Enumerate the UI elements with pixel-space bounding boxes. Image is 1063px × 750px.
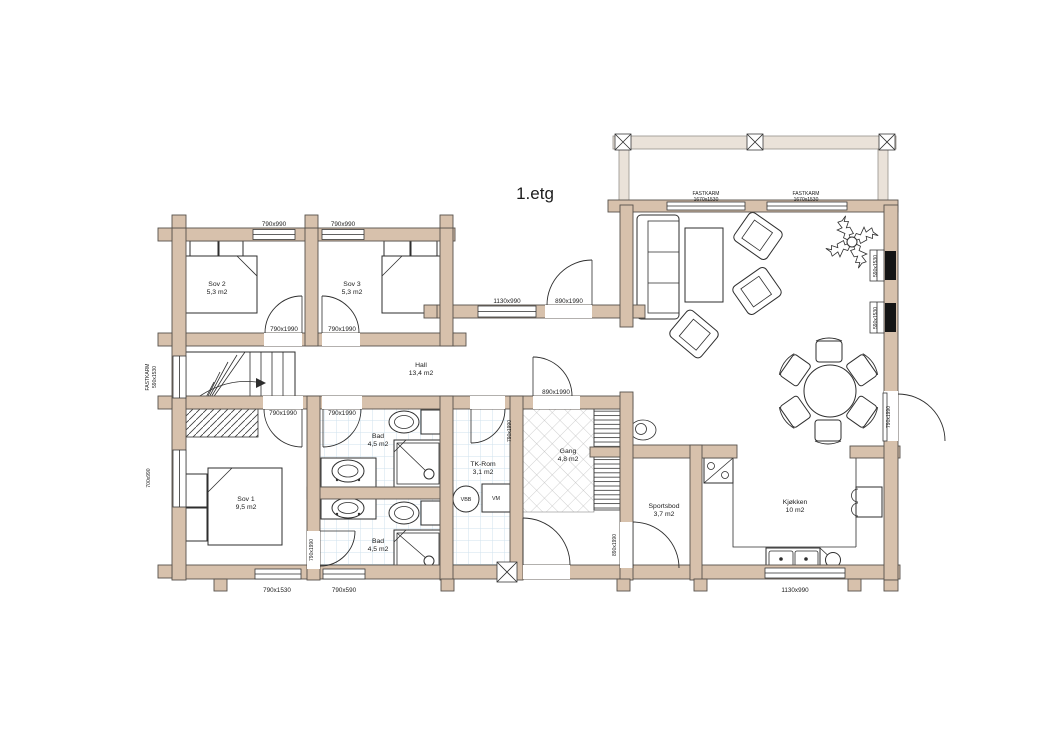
wall-sov2-sov3 (305, 228, 318, 346)
hall-north-window-dim: 1130x990 (493, 298, 521, 305)
stue-win2-dim: 1670x1530 (794, 197, 819, 203)
sov1-door-dim: 790x1990 (269, 410, 297, 417)
wall-notch (884, 580, 898, 591)
wall-sportsbod-north (620, 445, 737, 458)
gang-area: 4,8 m2 (558, 456, 579, 463)
wall-notch (158, 228, 172, 241)
stue-window-1 (667, 202, 745, 210)
armchair (731, 266, 783, 317)
bad1-area: 4,5 m2 (368, 441, 389, 448)
bad1-toilet (389, 410, 440, 434)
stue-win1-dim: 1670x1530 (694, 197, 719, 203)
water-heater-vbb: VBB (453, 486, 479, 512)
bad2-bottom-window-dim: 790x590 (332, 587, 357, 594)
wall-stue-west-upper (620, 205, 633, 327)
post-symbol (615, 134, 631, 150)
washing-machine-vm: VM (482, 484, 510, 512)
terrace-post-beam-right (878, 149, 888, 201)
sov2-window (253, 230, 295, 240)
bad2-bottom-window (323, 569, 365, 579)
post-symbol (747, 134, 763, 150)
tkrom-name: TK-Rom (470, 461, 496, 468)
stair-window-dim: 590x1530 (152, 366, 158, 388)
kjokken-area: 10 m2 (786, 507, 805, 514)
floorplan-page: VBB VM (0, 0, 1063, 750)
sportsbod-area: 3,7 m2 (654, 511, 675, 518)
sov3-name: Sov 3 (343, 281, 361, 288)
sov3-area: 5,3 m2 (342, 289, 363, 296)
east-window1-dim: 590x1530 (873, 255, 879, 277)
dining-table (804, 365, 856, 417)
wall-closet-divider (590, 447, 620, 457)
wall-bad-divider (307, 487, 453, 499)
wall-stue-north (608, 200, 898, 212)
sov3-door-dim: 790x1990 (328, 326, 356, 333)
dining-chair (816, 338, 842, 362)
wall-notch (214, 579, 227, 591)
sov3-window-dim: 790x990 (331, 221, 356, 228)
wall-west (172, 228, 186, 580)
wall-sov3-east (440, 228, 453, 346)
tkrom-area: 3,1 m2 (473, 469, 494, 476)
wall-notch (848, 579, 861, 591)
sov1-wardrobe (186, 409, 258, 437)
wall-notch (633, 305, 645, 318)
east-window2-dim: 590x1530 (873, 307, 879, 329)
gang-hall-door-dim: 890x1990 (542, 389, 570, 396)
page-title: 1.etg (516, 184, 554, 203)
wall-notch (441, 579, 454, 591)
sportsbod-name: Sportsbod (649, 503, 680, 510)
dining-set (777, 338, 880, 444)
terrace-post-beam-left (619, 149, 629, 201)
bad2-door-dim: 790x1990 (309, 539, 315, 561)
gang-closet-lower (594, 457, 620, 510)
tkrom-door-dim: 790x1990 (507, 420, 513, 442)
wall-bad-tkrom (440, 396, 453, 580)
sov2-name: Sov 2 (208, 281, 226, 288)
stue-window-2 (767, 202, 847, 210)
wall-notch (158, 565, 172, 578)
sov2-area: 5,3 m2 (207, 289, 228, 296)
wall-notch (694, 579, 707, 591)
wall-notch (453, 333, 466, 346)
terrace-structure (613, 134, 896, 201)
bad1-sink (321, 458, 376, 487)
sofa (637, 215, 679, 319)
sov2-bed (185, 241, 257, 313)
sov1-side-window-dim: 700x990 (146, 468, 152, 487)
wall-notch (617, 579, 630, 591)
hall-north-door-dim: 890x1990 (555, 298, 583, 305)
wall-lamp-decor (630, 420, 656, 440)
kjokken-window-dim: 1130x990 (781, 587, 809, 594)
sov2-door-dim: 790x1990 (270, 326, 298, 333)
bad1-name: Bad (372, 433, 384, 440)
bad1-shower (394, 440, 442, 487)
kitchen-corner-unit (704, 458, 733, 483)
post-symbol (497, 562, 517, 582)
sov1-bottom-window-dim: 790x1530 (263, 587, 291, 594)
hall-name: Hall (415, 362, 427, 369)
post-symbol (879, 134, 895, 150)
wall-notch (440, 215, 453, 228)
stair-window (173, 356, 186, 398)
kjokken-name: Kjøkken (783, 499, 808, 506)
bad2-sink (321, 497, 376, 519)
bad1-door-dim: 790x1990 (328, 410, 356, 417)
stair-window-type: FASTKARM (145, 364, 151, 391)
sov1-bottom-window (255, 569, 301, 579)
east-door-dim: 790x1990 (886, 406, 892, 428)
armchair (732, 211, 784, 262)
sov1-bed (186, 468, 282, 545)
dining-chair (815, 420, 841, 444)
sov1-area: 9,5 m2 (236, 504, 257, 511)
hall-area: 13,4 m2 (409, 370, 434, 377)
sportsbod-door (633, 522, 679, 568)
coffee-table (685, 228, 723, 302)
vbb-label: VBB (461, 497, 472, 503)
kjokken-window (765, 568, 845, 578)
wall-notch (305, 215, 318, 228)
sov2-window-dim: 790x990 (262, 221, 287, 228)
vm-label: VM (492, 496, 501, 502)
floorplan-drawing: VBB VM (0, 0, 1063, 750)
wall-notch (158, 333, 172, 346)
sov3-window (322, 230, 364, 240)
sov1-side-window (173, 450, 186, 507)
kitchen-stove (852, 487, 883, 517)
bad2-toilet (389, 501, 440, 525)
wall-sportsbod-kjokken (690, 445, 702, 580)
bad2-name: Bad (372, 538, 384, 545)
hall-north-window (478, 306, 536, 317)
sov1-name: Sov 1 (237, 496, 255, 503)
wall-notch (172, 215, 186, 228)
entrance-door (523, 518, 570, 565)
wall-notch (158, 396, 172, 409)
bad2-area: 4,5 m2 (368, 546, 389, 553)
gang-closet-upper (594, 409, 620, 447)
sov3-bed (382, 241, 440, 313)
gang-name: Gang (560, 448, 577, 455)
wall-notch (424, 305, 437, 318)
sportsbod-door-dim: 890x1990 (612, 534, 618, 556)
